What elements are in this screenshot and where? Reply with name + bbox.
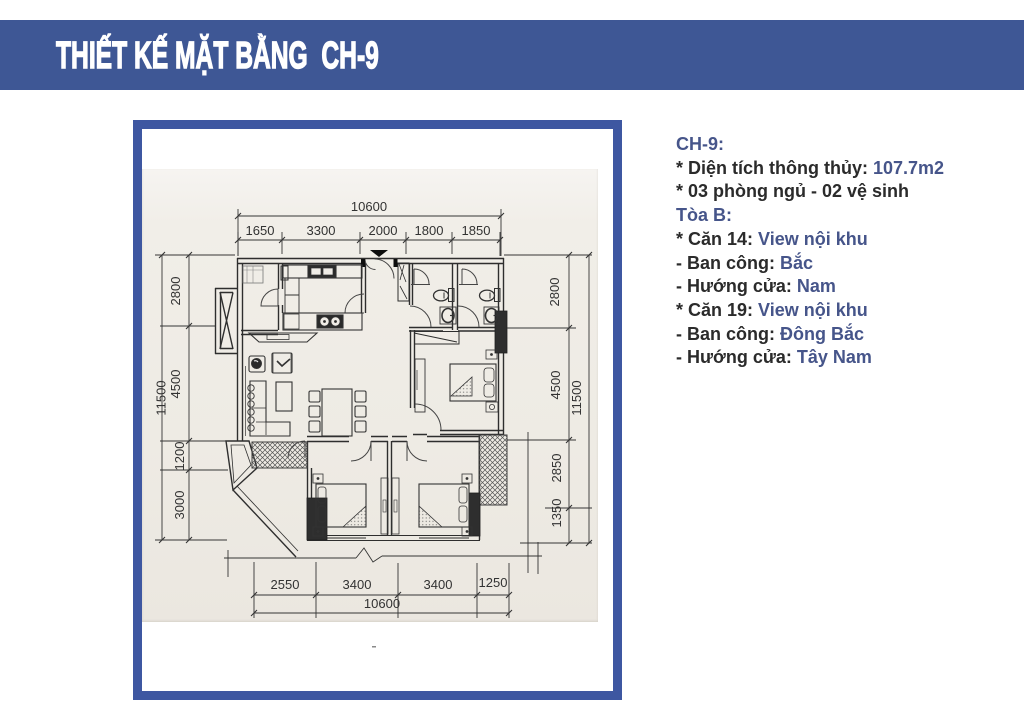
svg-text:2000: 2000 [369, 223, 398, 238]
svg-text:1800: 1800 [415, 223, 444, 238]
svg-text:2850: 2850 [549, 454, 564, 483]
svg-text:1850: 1850 [462, 223, 491, 238]
svg-text:10600: 10600 [351, 199, 387, 214]
svg-text:1250: 1250 [479, 575, 508, 590]
svg-text:3400: 3400 [424, 577, 453, 592]
svg-text:4500: 4500 [548, 371, 563, 400]
svg-text:2800: 2800 [168, 277, 183, 306]
svg-text:1650: 1650 [246, 223, 275, 238]
svg-text:1350: 1350 [549, 499, 564, 528]
svg-text:2800: 2800 [547, 278, 562, 307]
svg-text:11500: 11500 [154, 380, 169, 415]
svg-text:10600: 10600 [364, 596, 400, 611]
svg-text:3400: 3400 [343, 577, 372, 592]
svg-text:1200: 1200 [172, 442, 187, 471]
svg-text:3000: 3000 [172, 491, 187, 520]
svg-text:11500: 11500 [569, 380, 584, 415]
svg-text:4500: 4500 [168, 370, 183, 399]
svg-text:2550: 2550 [271, 577, 300, 592]
svg-text:3300: 3300 [307, 223, 336, 238]
